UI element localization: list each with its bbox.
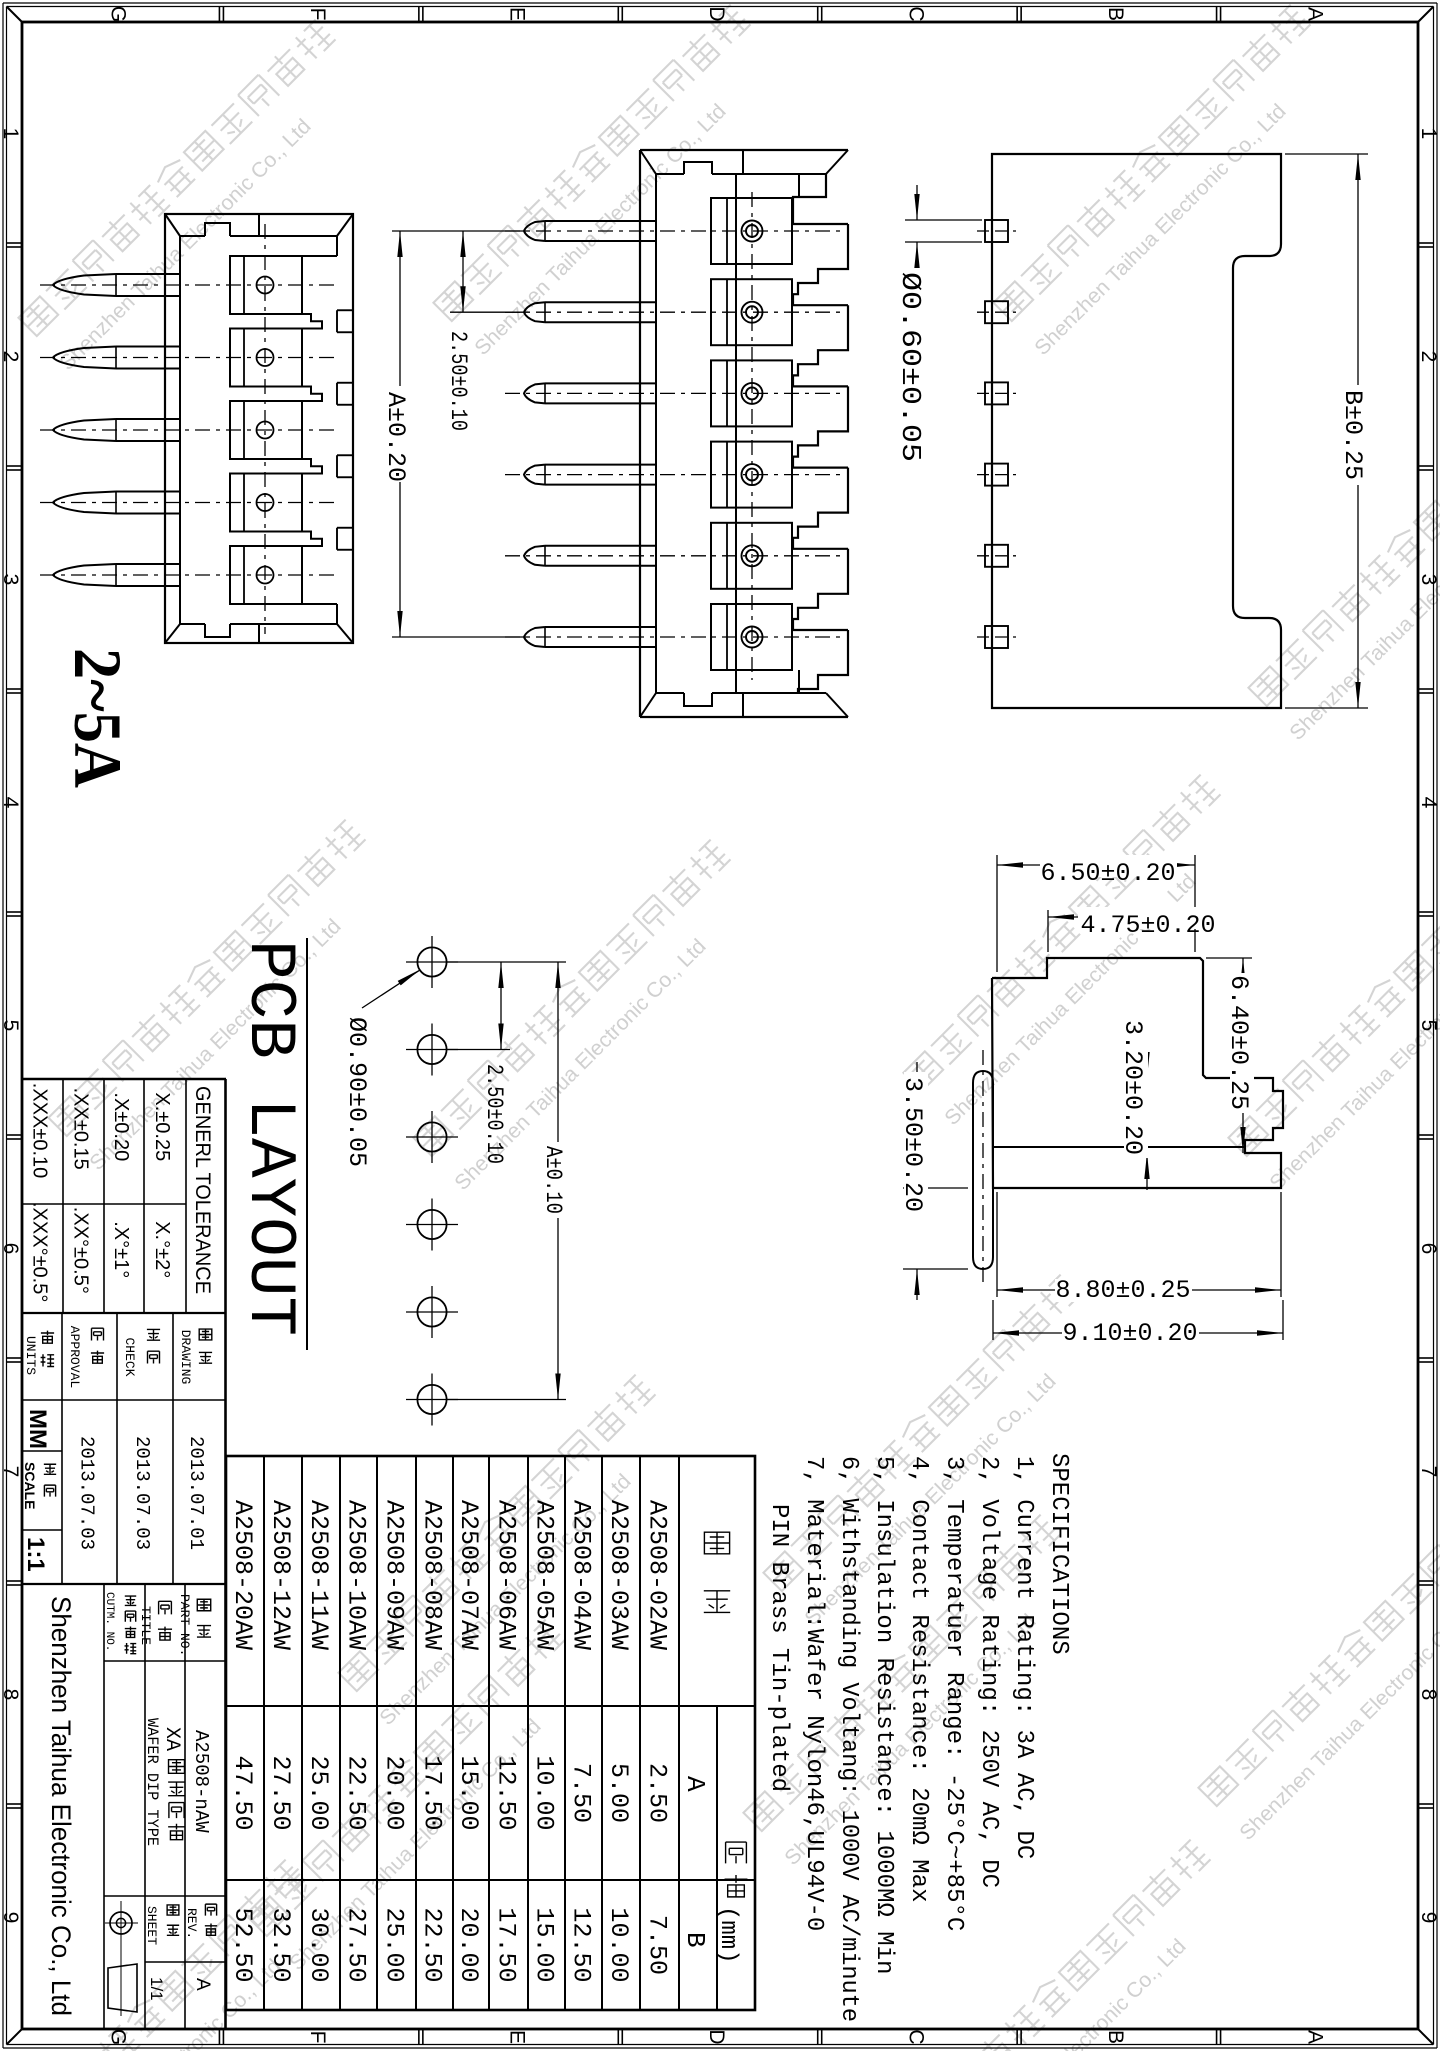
svg-text:A±0.20: A±0.20 [381,392,410,482]
svg-text:22.50: 22.50 [418,1908,447,1983]
svg-text:2: 2 [1417,351,1440,363]
svg-text:9.10±0.20: 9.10±0.20 [1062,1319,1197,1348]
svg-text:7.50: 7.50 [567,1763,596,1823]
svg-text:B±0.25: B±0.25 [1338,390,1367,480]
svg-text:G: G [107,6,130,22]
svg-text:MM: MM [24,1409,51,1449]
svg-text:GENERL TOLERANCE: GENERL TOLERANCE [191,1086,214,1294]
svg-text:7, Material:Wafer Nylon46,UL94: 7, Material:Wafer Nylon46,UL94V-0 [800,1456,827,1931]
svg-text:6.50±0.20: 6.50±0.20 [1040,859,1175,888]
svg-text:2.50±0.10: 2.50±0.10 [481,1064,507,1164]
svg-text:A: A [1303,7,1326,21]
svg-text:1: 1 [0,128,22,140]
svg-text:A: A [680,1776,710,1792]
svg-text:A2508-08AW: A2508-08AW [418,1500,447,1650]
svg-text:32.50: 32.50 [266,1908,295,1983]
svg-text:PART NO.: PART NO. [177,1594,192,1656]
svg-text:C: C [904,6,927,21]
svg-text:2013.07.03: 2013.07.03 [131,1436,153,1550]
svg-text:25.00: 25.00 [304,1756,333,1831]
svg-text:1/1: 1/1 [147,1977,166,2001]
svg-text:A2508-03AW: A2508-03AW [604,1500,633,1650]
svg-text:A±0.10: A±0.10 [540,1146,566,1214]
svg-text:G: G [107,2029,130,2045]
svg-text:C: C [904,2029,927,2044]
svg-text:A: A [1303,2030,1326,2044]
svg-text:9: 9 [1417,1912,1440,1924]
svg-text:3.20±0.20: 3.20±0.20 [1118,1020,1147,1155]
svg-text:1, Current Rating: 3A AC, DC: 1, Current Rating: 3A AC, DC [1010,1456,1037,1859]
svg-text:A2508-09AW: A2508-09AW [380,1500,409,1650]
svg-text:5: 5 [1417,1020,1440,1032]
svg-text:PCB LAYOUT: PCB LAYOUT [232,940,307,1336]
svg-text:8.80±0.25: 8.80±0.25 [1055,1276,1190,1305]
svg-text:17.50: 17.50 [418,1756,447,1831]
svg-text:PIN Brass Tin-plated: PIN Brass Tin-plated [765,1504,792,1792]
svg-text:7.50: 7.50 [643,1915,672,1975]
svg-text:F: F [306,2031,329,2044]
svg-text:UNITS: UNITS [23,1336,38,1375]
svg-text:27.50: 27.50 [342,1908,371,1983]
svg-text:6, Withstanding Voltang: 1000V: 6, Withstanding Voltang: 1000V AC/minute [835,1456,862,2022]
svg-text:2.50: 2.50 [643,1763,672,1823]
svg-text:9: 9 [0,1912,22,1924]
svg-text:10.00: 10.00 [604,1908,633,1983]
svg-text:A2508-10AW: A2508-10AW [342,1500,371,1650]
svg-text:12.50: 12.50 [492,1756,521,1831]
svg-text:27.50: 27.50 [266,1756,295,1831]
svg-text:1: 1 [1417,128,1440,140]
svg-text:F: F [306,8,329,21]
svg-text:8: 8 [0,1689,22,1701]
svg-text:20.00: 20.00 [454,1908,483,1983]
svg-text:E: E [506,2030,529,2044]
svg-text:SCALE: SCALE [22,1462,38,1509]
svg-text:Ø0.90±0.05: Ø0.90±0.05 [342,1017,371,1167]
svg-text:22.50: 22.50 [342,1756,371,1831]
svg-text:D: D [705,2029,728,2044]
svg-text:TITLE: TITLE [138,1606,153,1645]
svg-text:A2508-05AW: A2508-05AW [530,1500,559,1650]
svg-text:3, Temperatuer Range: -25°C~+8: 3, Temperatuer Range: -25°C~+85°C [940,1456,967,1931]
svg-text:A2508-06AW: A2508-06AW [492,1500,521,1650]
svg-text:7: 7 [0,1466,22,1478]
svg-text:8: 8 [1417,1689,1440,1701]
svg-text:D: D [705,6,728,21]
svg-text:.XXX±0.10: .XXX±0.10 [29,1083,51,1178]
svg-text:52.50: 52.50 [228,1908,257,1983]
svg-text:A: A [192,1978,213,1991]
svg-text:2, Voltage Rating: 250V AC, DC: 2, Voltage Rating: 250V AC, DC [975,1456,1002,1888]
svg-text:47.50: 47.50 [228,1756,257,1831]
svg-text:REV.: REV. [184,1908,199,1939]
svg-text:2~5A: 2~5A [60,648,136,788]
svg-text:.XX°±0.5°: .XX°±0.5° [70,1207,92,1294]
svg-text:DRAWING: DRAWING [178,1330,193,1385]
svg-text:.X°±1°: .X°±1° [110,1221,132,1278]
svg-text:2013.07.03: 2013.07.03 [76,1436,98,1550]
svg-text:5.00: 5.00 [604,1763,633,1823]
svg-text:4, Contact Resistance: 20mΩ Ma: 4, Contact Resistance: 20mΩ Max [905,1456,932,1902]
svg-text:SPECIFICATIONS: SPECIFICATIONS [1045,1453,1072,1655]
svg-text:E: E [506,7,529,21]
svg-text:A2508-12AW: A2508-12AW [266,1500,295,1650]
svg-text:A2508-02AW: A2508-02AW [643,1500,672,1650]
svg-text:APPROVAL: APPROVAL [67,1326,82,1388]
svg-text:X.±0.25: X.±0.25 [151,1092,173,1161]
svg-text:A2508-nAW: A2508-nAW [190,1730,212,1833]
svg-text:7: 7 [1417,1466,1440,1478]
svg-text:3: 3 [1417,574,1440,586]
svg-text:B: B [1104,2030,1127,2044]
svg-text:17.50: 17.50 [492,1908,521,1983]
svg-text:6.40±0.25: 6.40±0.25 [1224,975,1253,1110]
svg-text:X.°±2°: X.°±2° [151,1221,173,1278]
svg-text:A2508-04AW: A2508-04AW [567,1500,596,1650]
svg-text:5: 5 [0,1020,22,1032]
svg-text:A2508-11AW: A2508-11AW [304,1500,333,1650]
svg-text:CHECK: CHECK [122,1338,137,1377]
svg-text:XA: XA [160,1727,183,1751]
svg-text:A2508-07AW: A2508-07AW [454,1500,483,1650]
svg-text:6: 6 [0,1243,22,1255]
svg-text:3.50±0.20: 3.50±0.20 [898,1077,927,1212]
svg-text:(mm): (mm) [714,1906,741,1964]
svg-text:B: B [1104,7,1127,21]
svg-text:10.00: 10.00 [530,1756,559,1831]
svg-text:B: B [680,1932,710,1948]
svg-text:1:1: 1:1 [22,1537,49,1572]
svg-text:Shenzhen Taihua Electronic Co.: Shenzhen Taihua Electronic Co., Ltd [46,1596,76,2016]
svg-text:6: 6 [1417,1243,1440,1255]
svg-text:Ø0.60±0.05: Ø0.60±0.05 [894,272,924,462]
svg-text:.XXX°±0.5°: .XXX°±0.5° [29,1202,51,1302]
svg-text:4: 4 [0,797,22,809]
svg-text:15.00: 15.00 [454,1756,483,1831]
svg-text:3: 3 [0,574,22,586]
svg-text:30.00: 30.00 [304,1908,333,1983]
svg-text:4: 4 [1417,797,1440,809]
svg-text:2.50±0.10: 2.50±0.10 [445,331,471,431]
svg-text:WAFER DIP TYPE: WAFER DIP TYPE [143,1718,161,1846]
svg-text:2013.07.01: 2013.07.01 [185,1436,207,1550]
svg-text:A2508-20AW: A2508-20AW [228,1500,257,1650]
svg-text:2: 2 [0,351,22,363]
svg-text:.X±0.20: .X±0.20 [110,1092,132,1161]
svg-text:20.00: 20.00 [380,1756,409,1831]
svg-text:CUTM. NO.: CUTM. NO. [103,1592,115,1651]
svg-text:12.50: 12.50 [567,1908,596,1983]
svg-text:.XX±0.15: .XX±0.15 [70,1088,92,1170]
svg-text:SHEET: SHEET [144,1906,159,1945]
svg-text:15.00: 15.00 [530,1908,559,1983]
svg-text:4.75±0.20: 4.75±0.20 [1080,911,1215,940]
svg-text:5, Insulation Resistance: 1000: 5, Insulation Resistance: 1000MΩ Min [870,1456,897,1974]
svg-text:25.00: 25.00 [380,1908,409,1983]
